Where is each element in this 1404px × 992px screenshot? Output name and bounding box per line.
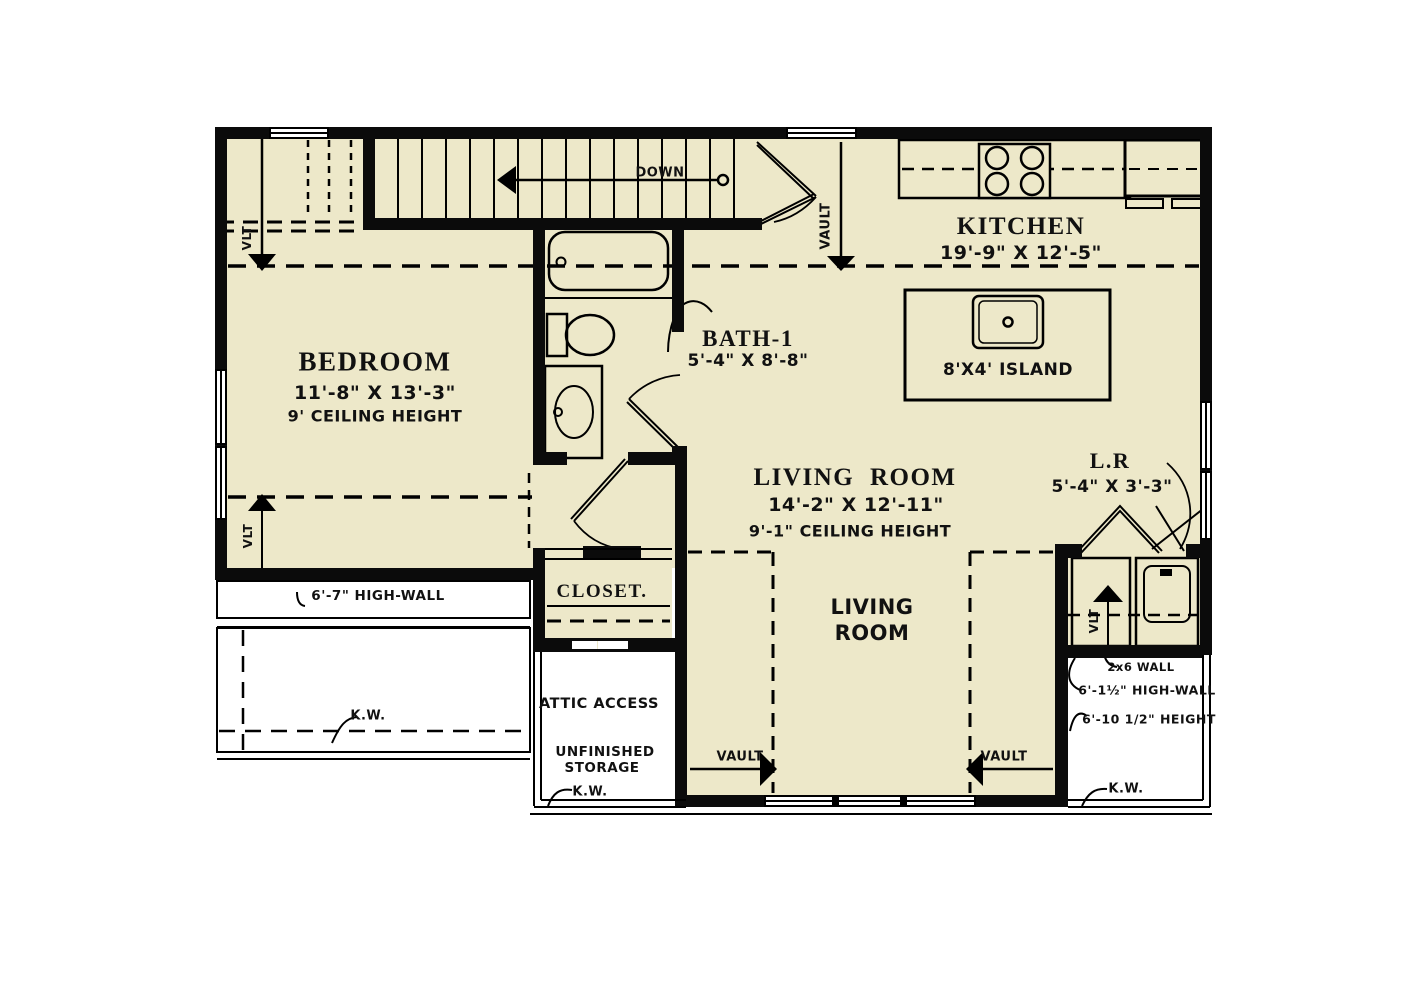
living-ceiling-label: 9'-1" CEILING HEIGHT xyxy=(749,522,951,541)
stove-icon xyxy=(979,144,1050,198)
wall-2x6-label: 2x6 WALL xyxy=(1107,660,1174,674)
unfinished-label: UNFINISHED xyxy=(555,744,654,760)
kw-attic-label: K.W. xyxy=(572,785,607,800)
kw-left-label: K.W. xyxy=(350,709,385,724)
living-floor-label-2: ROOM xyxy=(835,621,910,645)
vault-left-label: VAULT xyxy=(717,750,764,765)
height-right-label: 6'-10 1/2" HEIGHT xyxy=(1082,712,1216,727)
vault-kitchen-label: VAULT xyxy=(819,203,834,250)
bath-dims-label: 5'-4" X 8'-8" xyxy=(688,351,809,371)
laundry-dims-label: 5'-4" X 3'-3" xyxy=(1052,477,1173,497)
island-label: 8'X4' ISLAND xyxy=(943,360,1073,380)
highwall-left-label: 6'-7" HIGH-WALL xyxy=(311,588,444,604)
bedroom-ceiling-label: 9' CEILING HEIGHT xyxy=(288,407,463,426)
bedroom-name-label: BEDROOM xyxy=(298,347,451,378)
kw-right-label: K.W. xyxy=(1108,782,1143,797)
kitchen-name-label: KITCHEN xyxy=(957,213,1086,241)
vault-right-label: VAULT xyxy=(981,750,1028,765)
storage-label: STORAGE xyxy=(564,760,639,776)
floor-plan-drawing xyxy=(0,0,1404,992)
attic-hatch-gap xyxy=(572,641,628,649)
highwall-right-label: 6'-1½" HIGH-WALL xyxy=(1078,683,1216,698)
closet-name-label: CLOSET. xyxy=(557,581,648,603)
left-attic-area xyxy=(217,628,530,759)
vlt-bottom-label: VLT xyxy=(241,524,255,549)
living-name-label: LIVING ROOM xyxy=(754,464,957,492)
vlt-top-label: VLT xyxy=(240,226,254,251)
floor-plan-page: BEDROOM 11'-8" X 13'-3" 9' CEILING HEIGH… xyxy=(0,0,1404,992)
bedroom-dims-label: 11'-8" X 13'-3" xyxy=(294,382,456,404)
attic-access-label: ATTIC ACCESS xyxy=(539,696,659,712)
laundry-name-label: L.R xyxy=(1090,448,1131,474)
kitchen-dims-label: 19'-9" X 12'-5" xyxy=(940,242,1102,264)
living-floor-label-1: LIVING xyxy=(830,595,913,619)
living-dims-label: 14'-2" X 12'-11" xyxy=(768,494,944,516)
bath-name-label: BATH-1 xyxy=(702,326,794,352)
down-label: DOWN xyxy=(635,166,684,181)
vlt-laundry-label: VLT xyxy=(1087,609,1101,634)
